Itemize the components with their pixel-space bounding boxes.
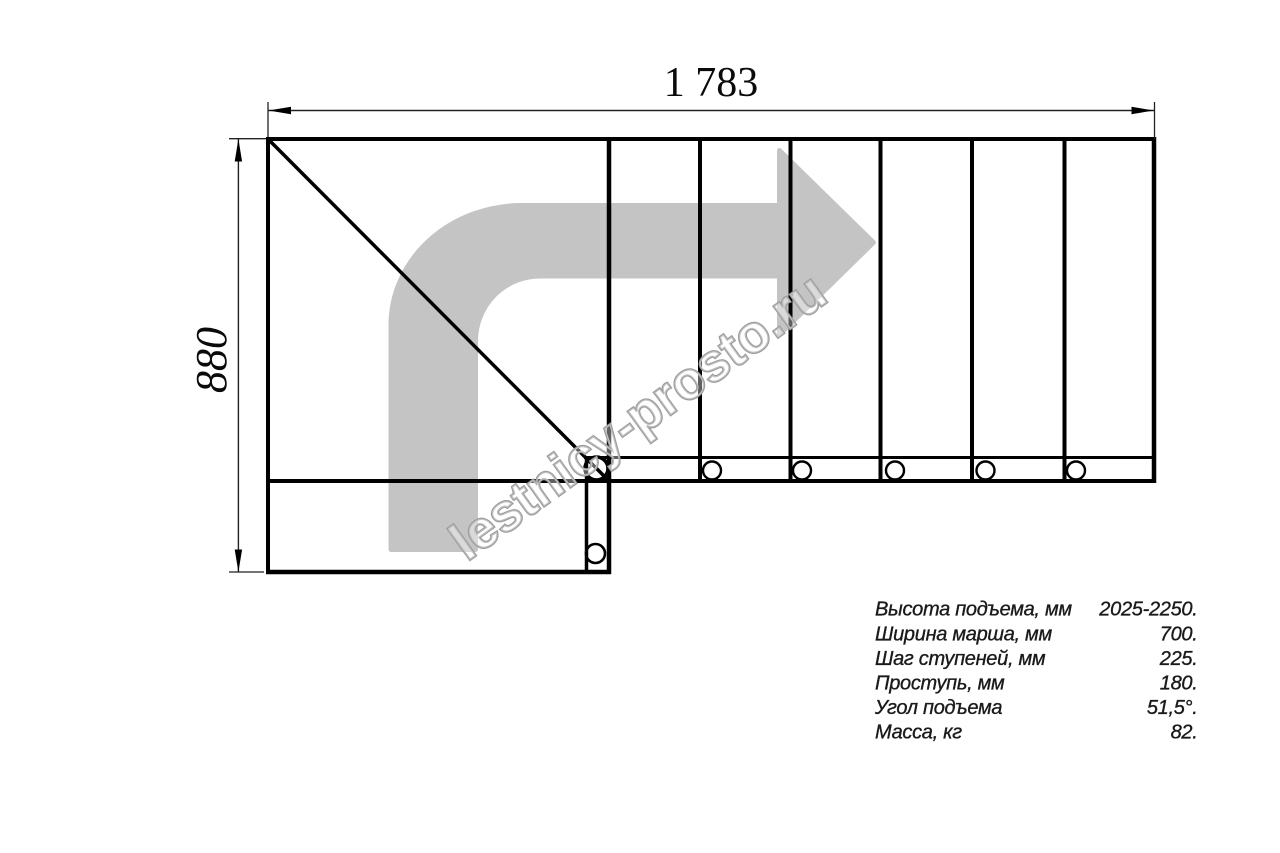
svg-text:lestnicy-prosto.ru: lestnicy-prosto.ru — [440, 262, 838, 572]
svg-text:2025-2250.: 2025-2250. — [1098, 599, 1197, 621]
svg-text:880: 880 — [187, 327, 236, 393]
svg-text:Ширина марша, мм: Ширина марша, мм — [875, 624, 1052, 646]
svg-text:Масса, кг: Масса, кг — [875, 722, 962, 744]
svg-text:180.: 180. — [1160, 673, 1198, 695]
svg-text:Проступь, мм: Проступь, мм — [875, 673, 1005, 695]
svg-text:Угол подъема: Угол подъема — [874, 697, 1002, 719]
svg-text:82.: 82. — [1171, 722, 1198, 744]
svg-text:51,5°.: 51,5°. — [1147, 697, 1198, 719]
svg-text:Высота подъема, мм: Высота подъема, мм — [875, 599, 1072, 621]
svg-text:700.: 700. — [1160, 624, 1198, 646]
svg-text:225.: 225. — [1159, 648, 1198, 670]
svg-text:1 783: 1 783 — [664, 60, 759, 106]
svg-text:Шаг ступеней, мм: Шаг ступеней, мм — [875, 648, 1046, 670]
